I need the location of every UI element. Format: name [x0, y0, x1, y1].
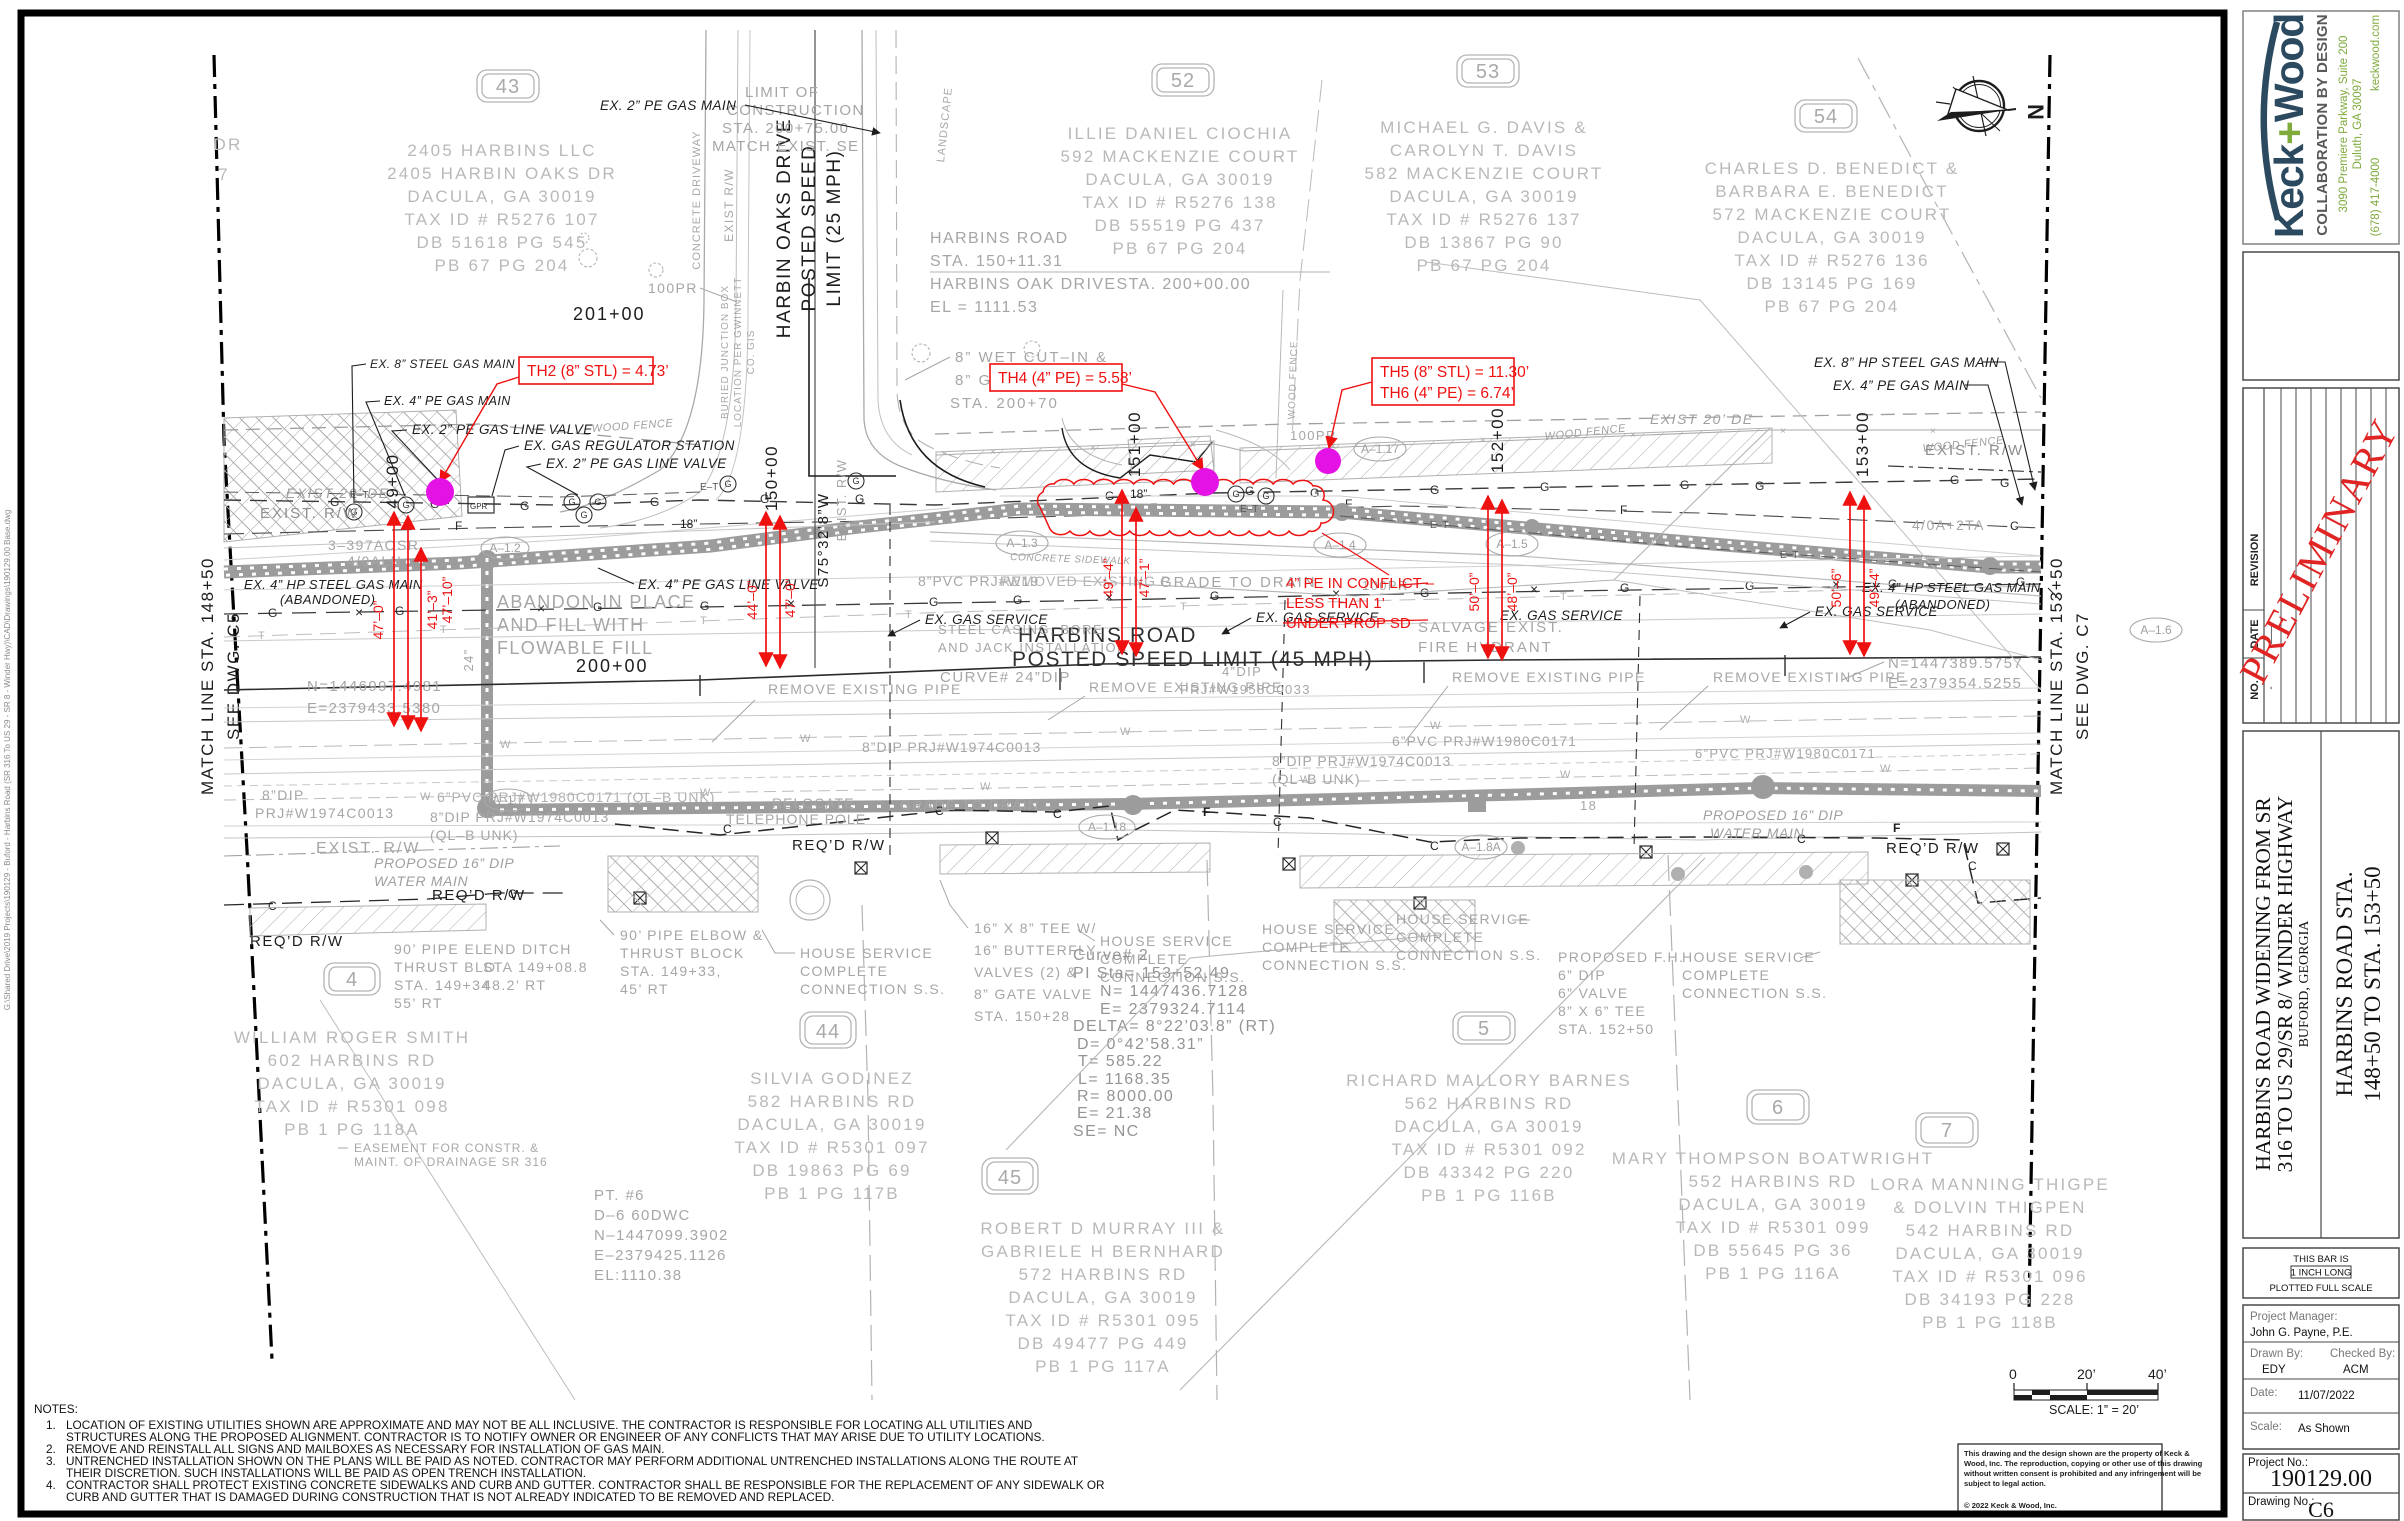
- svg-text:This drawing and the design sh: This drawing and the design shown are th…: [1964, 1449, 2190, 1458]
- svg-text:G: G: [855, 492, 864, 506]
- svg-text:Checked By:: Checked By:: [2330, 1348, 2395, 1360]
- svg-text:AND FILL WITH: AND FILL WITH: [497, 615, 645, 635]
- svg-text:EX. 2” PE GAS MAIN: EX. 2” PE GAS MAIN: [600, 98, 736, 113]
- svg-text:COLLABORATION BY DESIGN: COLLABORATION BY DESIGN: [2314, 14, 2331, 236]
- svg-text:4.: 4.: [46, 1478, 56, 1492]
- svg-text:90’ PIPE ELBOW &: 90’ PIPE ELBOW &: [620, 927, 763, 943]
- svg-text:582 MACKENZIE COURT: 582 MACKENZIE COURT: [1365, 164, 1604, 183]
- svg-text:EXIST. R/W: EXIST. R/W: [1925, 442, 2024, 459]
- svg-text:GPR: GPR: [470, 502, 488, 511]
- svg-text:PB 1 PG 118A: PB 1 PG 118A: [284, 1120, 420, 1139]
- svg-text:DB 19863 PG 69: DB 19863 PG 69: [752, 1161, 911, 1180]
- svg-text:TAX ID # R5301 095: TAX ID # R5301 095: [1005, 1311, 1200, 1330]
- svg-text:G: G: [1310, 486, 1319, 500]
- svg-text:A–1.8A: A–1.8A: [1461, 840, 1500, 854]
- svg-text:FLOWABLE FILL: FLOWABLE FILL: [497, 638, 654, 658]
- svg-text:COMPLETE: COMPLETE: [1262, 939, 1350, 955]
- svg-text:4” PE IN CONFLICT –: 4” PE IN CONFLICT –: [1286, 575, 1435, 592]
- svg-text:HOUSE SERVICE: HOUSE SERVICE: [1262, 921, 1395, 937]
- svg-text:×: ×: [990, 447, 996, 458]
- svg-text:TAX ID # R5301 099: TAX ID # R5301 099: [1675, 1218, 1870, 1237]
- svg-text:DACULA, GA 30019: DACULA, GA 30019: [1678, 1195, 1867, 1214]
- svg-text:HARBINS ROAD: HARBINS ROAD: [930, 230, 1069, 247]
- svg-text:A–1.17: A–1.17: [1361, 442, 1399, 456]
- svg-text:6: 6: [1772, 1097, 1784, 1119]
- svg-text:EX. 4” PE GAS MAIN: EX. 4” PE GAS MAIN: [1833, 378, 1969, 393]
- svg-text:STA. 149+34: STA. 149+34: [394, 977, 490, 993]
- svg-text:T: T: [258, 630, 265, 642]
- svg-text:W: W: [980, 781, 991, 793]
- svg-text:REQ’D R/W: REQ’D R/W: [432, 887, 526, 904]
- svg-text:REQ’D R/W: REQ’D R/W: [792, 837, 886, 854]
- svg-text:A–1.3: A–1.3: [1006, 536, 1038, 550]
- svg-text:G: G: [268, 606, 277, 620]
- svg-text:EX. 4” PE GAS MAIN: EX. 4” PE GAS MAIN: [384, 394, 511, 408]
- svg-text:3–397AOSR: 3–397AOSR: [328, 537, 419, 553]
- svg-text:×: ×: [1630, 430, 1636, 441]
- svg-text:DACULA, GA 30019: DACULA, GA 30019: [1008, 1288, 1197, 1307]
- svg-text:E= 2379324.7114: E= 2379324.7114: [1100, 1001, 1247, 1018]
- svg-text:EX. 8” HP STEEL GAS MAIN: EX. 8” HP STEEL GAS MAIN: [1814, 355, 1999, 370]
- svg-text:DACULA, GA 30019: DACULA, GA 30019: [737, 1115, 926, 1134]
- svg-text:G:\Shared Drive\2019 Projects\: G:\Shared Drive\2019 Projects\190129 - B…: [3, 510, 12, 1011]
- svg-text:602 HARBINS RD: 602 HARBINS RD: [268, 1051, 437, 1070]
- svg-text:×: ×: [1530, 581, 1538, 597]
- svg-text:TELEPHONE POLE: TELEPHONE POLE: [726, 811, 866, 827]
- svg-text:DACULA, GA 30019: DACULA, GA 30019: [1394, 1117, 1583, 1136]
- svg-text:GRADE TO DRAIN: GRADE TO DRAIN: [900, 797, 1040, 813]
- svg-text:TH2 (8” STL) = 4.73’: TH2 (8” STL) = 4.73’: [527, 363, 669, 380]
- svg-text:Drawn By:: Drawn By:: [2250, 1348, 2303, 1360]
- svg-text:PLOTTED FULL SCALE: PLOTTED FULL SCALE: [2269, 1283, 2372, 1294]
- svg-text:8”DIP: 8”DIP: [262, 787, 305, 803]
- svg-text:18”: 18”: [680, 517, 697, 531]
- svg-text:DB 34193 PG 228: DB 34193 PG 228: [1905, 1290, 2076, 1309]
- svg-text:RICHARD MALLORY BARNES: RICHARD MALLORY BARNES: [1346, 1071, 1632, 1090]
- svg-text:EX. GAS SERVICE: EX. GAS SERVICE: [925, 612, 1048, 627]
- svg-text:2405 HARBINS LLC: 2405 HARBINS LLC: [407, 141, 596, 160]
- svg-text:316 TO US 29/SR 8/ WINDER HIGH: 316 TO US 29/SR 8/ WINDER HIGHWAY: [2273, 796, 2297, 1173]
- svg-text:PROPOSED 16” DIP: PROPOSED 16” DIP: [1703, 807, 1843, 823]
- svg-text:(QL–B UNK): (QL–B UNK): [1272, 771, 1361, 787]
- svg-text:A–1.18: A–1.18: [1088, 820, 1126, 834]
- svg-text:8”DIP PRJ#W1974C0013: 8”DIP PRJ#W1974C0013: [862, 739, 1041, 755]
- svg-text:562 HARBINS RD: 562 HARBINS RD: [1405, 1094, 1574, 1113]
- svg-text:G: G: [1210, 589, 1219, 603]
- svg-text:STA. 152+50: STA. 152+50: [1558, 1021, 1654, 1037]
- svg-text:E= 21.38: E= 21.38: [1077, 1105, 1153, 1122]
- svg-text:G: G: [568, 497, 575, 507]
- svg-text:VALVES (2) &: VALVES (2) &: [974, 964, 1077, 980]
- svg-text:A–1.5: A–1.5: [1496, 537, 1528, 551]
- svg-text:6”PVC PRJ#W1980C0171: 6”PVC PRJ#W1980C0171: [1695, 746, 1876, 761]
- svg-text:T: T: [440, 624, 447, 636]
- svg-text:F: F: [455, 519, 462, 533]
- svg-text:DB 49477 PG 449: DB 49477 PG 449: [1018, 1334, 1189, 1353]
- svg-text:MARY THOMPSON BOATWRIGHT: MARY THOMPSON BOATWRIGHT: [1612, 1149, 1935, 1168]
- svg-text:EL:1110.38: EL:1110.38: [594, 1267, 683, 1284]
- svg-text:PB 1 PG 116B: PB 1 PG 116B: [1421, 1186, 1557, 1205]
- svg-text:E–T: E–T: [700, 482, 718, 493]
- svg-text:54: 54: [1814, 106, 1838, 128]
- svg-text:EX. GAS REGULATOR STATION: EX. GAS REGULATOR STATION: [524, 438, 735, 453]
- svg-text:C: C: [2010, 519, 2019, 533]
- svg-text:HOUSE SERVICE: HOUSE SERVICE: [1682, 949, 1815, 965]
- svg-text:E–T: E–T: [1240, 504, 1258, 515]
- svg-text:E=2379354.5255: E=2379354.5255: [1888, 675, 2022, 692]
- svg-text:100PR: 100PR: [1290, 428, 1337, 443]
- svg-text:STA. 149+33,: STA. 149+33,: [620, 963, 722, 979]
- svg-text:DB 13867 PG 90: DB 13867 PG 90: [1404, 233, 1563, 252]
- svg-text:0: 0: [2009, 1366, 2017, 1382]
- svg-text:50’–6”: 50’–6”: [1828, 568, 1844, 607]
- svg-text:MATCH LINE STA. 153+50: MATCH LINE STA. 153+50: [2047, 557, 2066, 795]
- svg-text:REMOVE EXISTING PIPE: REMOVE EXISTING PIPE: [768, 681, 962, 697]
- svg-text:582 HARBINS RD: 582 HARBINS RD: [748, 1092, 917, 1111]
- svg-text:EX. 8” STEEL GAS MAIN: EX. 8” STEEL GAS MAIN: [370, 357, 515, 371]
- svg-text:TH4 (4” PE) = 5.58’: TH4 (4” PE) = 5.58’: [998, 370, 1132, 387]
- svg-text:55’ RT: 55’ RT: [394, 995, 443, 1011]
- svg-text:SCALE: 1” = 20’: SCALE: 1” = 20’: [2049, 1403, 2139, 1417]
- svg-text:542 HARBINS RD: 542 HARBINS RD: [1906, 1221, 2075, 1240]
- svg-text:TAX ID # R5276 138: TAX ID # R5276 138: [1082, 193, 1277, 212]
- svg-text:8” GATE VALVE: 8” GATE VALVE: [974, 986, 1093, 1002]
- svg-text:G: G: [1680, 478, 1689, 492]
- svg-text:W: W: [1560, 769, 1571, 781]
- svg-text:(ABANDONED): (ABANDONED): [280, 592, 375, 607]
- svg-text:ACM: ACM: [2343, 1364, 2369, 1376]
- svg-text:572 MACKENZIE COURT: 572 MACKENZIE COURT: [1713, 205, 1952, 224]
- svg-text:PB 1 PG 116A: PB 1 PG 116A: [1705, 1264, 1841, 1283]
- svg-text:F: F: [1620, 503, 1627, 517]
- svg-text:47’–1”: 47’–1”: [1136, 558, 1152, 597]
- svg-text:C6: C6: [2308, 1497, 2334, 1521]
- svg-text:×: ×: [1480, 435, 1486, 446]
- svg-text:CONNECTION S.S.: CONNECTION S.S.: [1396, 947, 1541, 963]
- svg-text:keckwood.com: keckwood.com: [2370, 15, 2382, 91]
- svg-text:DR: DR: [214, 135, 243, 154]
- svg-text:LOCATION PER GWINNETT: LOCATION PER GWINNETT: [733, 277, 744, 428]
- svg-text:THRUST BLOCK: THRUST BLOCK: [620, 945, 745, 961]
- svg-text:44: 44: [816, 1021, 840, 1043]
- svg-text:47’–0”: 47’–0”: [370, 600, 386, 639]
- svg-text:(678) 417-4000: (678) 417-4000: [2370, 158, 2382, 237]
- svg-text:148+50 TO STA. 153+50: 148+50 TO STA. 153+50: [2360, 866, 2385, 1101]
- svg-text:NOTES:: NOTES:: [34, 1402, 78, 1416]
- svg-text:LIMIT (25 MPH): LIMIT (25 MPH): [824, 149, 845, 306]
- svg-text:TAX ID # R5276 137: TAX ID # R5276 137: [1386, 210, 1581, 229]
- svg-text:EX. 2” PE GAS LINE VALVE: EX. 2” PE GAS LINE VALVE: [412, 422, 593, 437]
- svg-text:ROBERT D MURRAY III &: ROBERT D MURRAY III &: [980, 1219, 1225, 1238]
- svg-text:DB 51618 PG 545: DB 51618 PG 545: [417, 233, 588, 252]
- svg-text:PT. #6: PT. #6: [594, 1187, 645, 1204]
- svg-text:HOUSE SERVICE: HOUSE SERVICE: [800, 945, 933, 961]
- svg-text:W: W: [1430, 720, 1441, 732]
- svg-text:ABANDON IN PLACE: ABANDON IN PLACE: [497, 592, 695, 612]
- svg-text:N= 1447436.7128: N= 1447436.7128: [1100, 983, 1249, 1000]
- svg-text:D= 0°42’58.31”: D= 0°42’58.31”: [1077, 1036, 1204, 1053]
- svg-text:AND JACK INSTALLATION: AND JACK INSTALLATION: [938, 640, 1128, 655]
- svg-text:C: C: [1053, 807, 1062, 821]
- svg-text:END DITCH: END DITCH: [483, 941, 572, 957]
- svg-text:THIS BAR IS: THIS BAR IS: [2293, 1254, 2348, 1265]
- svg-text:8”DIP PRJ#W1974C0013: 8”DIP PRJ#W1974C0013: [430, 809, 609, 825]
- svg-text:EXIST 20’ DE: EXIST 20’ DE: [1650, 411, 1754, 427]
- svg-text:PB 1 PG 117B: PB 1 PG 117B: [764, 1184, 900, 1203]
- svg-text:16” X 8” TEE W/: 16” X 8” TEE W/: [974, 920, 1097, 936]
- svg-text:40’: 40’: [2148, 1366, 2167, 1382]
- svg-text:6”PVC PRJ#W1980C0171: 6”PVC PRJ#W1980C0171: [1392, 733, 1577, 749]
- svg-text:PI Sta= 153+52.49: PI Sta= 153+52.49: [1073, 965, 1230, 982]
- svg-text:L= 1168.35: L= 1168.35: [1078, 1071, 1171, 1088]
- svg-text:45: 45: [998, 1167, 1022, 1189]
- svg-text:E–T: E–T: [1780, 550, 1798, 561]
- svg-text:REMOVE EXISTING PIPE: REMOVE EXISTING PIPE: [1089, 679, 1283, 695]
- svg-text:S75°32’8”W: S75°32’8”W: [815, 492, 832, 587]
- svg-text:As Shown: As Shown: [2298, 1423, 2350, 1435]
- svg-text:CURB AND GUTTER THAT IS DAMAGE: CURB AND GUTTER THAT IS DAMAGED DURING C…: [66, 1490, 834, 1504]
- svg-text:F: F: [1203, 805, 1210, 819]
- svg-text:G: G: [1232, 489, 1239, 499]
- svg-text:D–6 60DWC: D–6 60DWC: [594, 1207, 691, 1224]
- svg-text:100PR: 100PR: [648, 280, 698, 296]
- svg-text:SEE DWG. C5: SEE DWG. C5: [224, 612, 243, 740]
- svg-text:R= 8000.00: R= 8000.00: [1077, 1088, 1174, 1105]
- svg-text:COMPLETE: COMPLETE: [1396, 929, 1484, 945]
- svg-text:W: W: [1880, 763, 1891, 775]
- svg-text:7: 7: [218, 165, 230, 184]
- svg-text:CONNECTION S.S.: CONNECTION S.S.: [1262, 957, 1407, 973]
- svg-text:LESS THAN 1’: LESS THAN 1’: [1286, 595, 1385, 612]
- svg-text:2405 HARBIN OAKS DR: 2405 HARBIN OAKS DR: [387, 164, 617, 183]
- svg-text:G: G: [594, 497, 601, 507]
- svg-text:TAX ID # R5276 136: TAX ID # R5276 136: [1734, 251, 1929, 270]
- svg-text:REVISION: REVISION: [2249, 534, 2261, 587]
- svg-text:C: C: [1430, 839, 1439, 853]
- svg-text:POSTED SPEED: POSTED SPEED: [799, 144, 820, 311]
- svg-text:N–1447099.3902: N–1447099.3902: [594, 1227, 729, 1244]
- svg-text:CAROLYN T. DAVIS: CAROLYN T. DAVIS: [1390, 141, 1578, 160]
- svg-text:BARBARA E. BENEDICT: BARBARA E. BENEDICT: [1715, 182, 1949, 201]
- svg-text:PB 67 PG 204: PB 67 PG 204: [1416, 256, 1551, 275]
- svg-text:WATER MAIN: WATER MAIN: [1710, 825, 1804, 841]
- svg-text:24”: 24”: [461, 649, 476, 672]
- svg-text:6”PVC PRJ#W1980C0171 (QL–B UNK: 6”PVC PRJ#W1980C0171 (QL–B UNK): [437, 789, 715, 805]
- svg-text:50’–0”: 50’–0”: [1466, 572, 1482, 611]
- svg-text:×: ×: [1090, 443, 1096, 454]
- svg-text:G: G: [1620, 581, 1629, 595]
- svg-text:47’–10”: 47’–10”: [439, 576, 455, 623]
- svg-text:E–T: E–T: [1430, 520, 1448, 531]
- svg-text:REQ’D R/W: REQ’D R/W: [1886, 840, 1980, 857]
- svg-text:(QL–B UNK): (QL–B UNK): [430, 827, 519, 843]
- svg-text:THRUST BLO: THRUST BLO: [394, 959, 496, 975]
- svg-text:W: W: [1740, 714, 1751, 726]
- svg-text:44’–0”: 44’–0”: [744, 580, 760, 619]
- svg-text:3090 Premiere Parkway, Suite 2: 3090 Premiere Parkway, Suite 200: [2338, 36, 2350, 213]
- svg-text:G: G: [1013, 593, 1022, 607]
- svg-text:MAINT. OF DRAINAGE SR 316: MAINT. OF DRAINAGE SR 316: [354, 1155, 548, 1169]
- svg-text:SEE DWG. C7: SEE DWG. C7: [2073, 612, 2092, 740]
- svg-text:Date:: Date:: [2250, 1387, 2278, 1399]
- svg-text:EXIST. R/W: EXIST. R/W: [834, 459, 849, 542]
- svg-text:572 HARBINS RD: 572 HARBINS RD: [1019, 1265, 1188, 1284]
- svg-text:EX. 2” PE GAS LINE VALVE: EX. 2” PE GAS LINE VALVE: [546, 456, 727, 471]
- svg-text:201+00: 201+00: [573, 304, 646, 324]
- svg-text:CONSTRUCTION: CONSTRUCTION: [727, 102, 865, 119]
- svg-text:without written consent is pro: without written consent is prohibited an…: [1963, 1469, 2201, 1478]
- svg-text:CONCRETE DRIVEWAY: CONCRETE DRIVEWAY: [691, 130, 703, 269]
- svg-text:SILVIA GODINEZ: SILVIA GODINEZ: [750, 1069, 914, 1088]
- svg-text:TH5 (8” STL) = 11.30’: TH5 (8” STL) = 11.30’: [1380, 364, 1529, 381]
- svg-text:HARBINS ROAD WIDENING FROM SR: HARBINS ROAD WIDENING FROM SR: [2251, 797, 2275, 1171]
- svg-text:DACULA, GA 30019: DACULA, GA 30019: [407, 187, 596, 206]
- svg-text:W: W: [1120, 726, 1131, 738]
- svg-text:×: ×: [1930, 426, 1936, 437]
- svg-text:47’–0”: 47’–0”: [782, 578, 798, 617]
- svg-text:153+00: 153+00: [1853, 411, 1872, 477]
- svg-text:DACULA, GA 30019: DACULA, GA 30019: [1085, 170, 1274, 189]
- svg-text:CHARLES D. BENEDICT &: CHARLES D. BENEDICT &: [1705, 159, 1960, 178]
- svg-text:18”: 18”: [1130, 487, 1147, 501]
- svg-text:4/0A+2TA: 4/0A+2TA: [1912, 517, 1985, 533]
- svg-text:T: T: [700, 615, 707, 627]
- svg-text:BURIED JUNCTION BOX: BURIED JUNCTION BOX: [720, 285, 731, 419]
- svg-text:52: 52: [1171, 70, 1195, 92]
- svg-text:EXIST. R/W: EXIST. R/W: [260, 505, 359, 522]
- svg-text:WATER MAIN: WATER MAIN: [374, 873, 468, 889]
- svg-text:UNDER PROP SD: UNDER PROP SD: [1286, 615, 1411, 632]
- svg-text:8”DIP PRJ#W1974C0013: 8”DIP PRJ#W1974C0013: [1272, 753, 1451, 769]
- svg-text:48.2’ RT: 48.2’ RT: [483, 977, 546, 993]
- svg-text:T: T: [1180, 601, 1187, 613]
- svg-text:N=1446997.4981: N=1446997.4981: [307, 678, 442, 695]
- svg-text:F: F: [1893, 821, 1900, 835]
- svg-text:DACULA, GA 30019: DACULA, GA 30019: [1389, 187, 1578, 206]
- svg-text:DACULA, GA 30019: DACULA, GA 30019: [1737, 228, 1926, 247]
- svg-text:HOUSE SERVICE: HOUSE SERVICE: [1396, 911, 1529, 927]
- svg-text:6” VALVE: 6” VALVE: [1558, 985, 1629, 1001]
- svg-text:3.: 3.: [46, 1454, 56, 1468]
- svg-text:COMPLETE: COMPLETE: [1682, 967, 1770, 983]
- svg-text:N=1447389.5757: N=1447389.5757: [1888, 655, 2023, 672]
- svg-text:MICHAEL G. DAVIS &: MICHAEL G. DAVIS &: [1380, 118, 1588, 137]
- svg-text:G: G: [700, 599, 709, 613]
- svg-text:W: W: [800, 733, 811, 745]
- svg-text:PB 67 PG 204: PB 67 PG 204: [1764, 297, 1899, 316]
- svg-text:CONNECTION S.S.: CONNECTION S.S.: [800, 981, 945, 997]
- svg-text:CONNECTION S.S.: CONNECTION S.S.: [1682, 985, 1827, 1001]
- svg-text:Scale:: Scale:: [2250, 1421, 2282, 1433]
- svg-text:592 MACKENZIE COURT: 592 MACKENZIE COURT: [1061, 147, 1300, 166]
- svg-text:GABRIELE H BERNHARD: GABRIELE H BERNHARD: [981, 1242, 1225, 1261]
- svg-text:PB 67 PG 204: PB 67 PG 204: [434, 256, 569, 275]
- svg-text:HARBINS OAK DRIVESTA. 200+00.0: HARBINS OAK DRIVESTA. 200+00.00: [930, 276, 1251, 293]
- svg-text:EL = 1111.53: EL = 1111.53: [930, 299, 1038, 316]
- svg-text:×: ×: [1780, 426, 1786, 437]
- svg-text:T: T: [905, 609, 912, 621]
- svg-text:EXIST R/W: EXIST R/W: [722, 168, 736, 242]
- svg-text:49’–4”: 49’–4”: [1866, 568, 1882, 607]
- svg-text:150+00: 150+00: [762, 445, 781, 511]
- svg-text:EX. 4” HP STEEL GAS MAIN: EX. 4” HP STEEL GAS MAIN: [1862, 580, 2041, 595]
- svg-text:G: G: [1262, 491, 1269, 501]
- svg-text:MATCH LINE STA. 148+50: MATCH LINE STA. 148+50: [198, 557, 217, 795]
- svg-text:REMOVE EXISTING PIPE: REMOVE EXISTING PIPE: [1452, 669, 1646, 685]
- svg-text:TAX ID # R5301 092: TAX ID # R5301 092: [1391, 1140, 1586, 1159]
- svg-text:E–2379425.1126: E–2379425.1126: [594, 1247, 727, 1264]
- svg-text:G: G: [1950, 473, 1959, 487]
- svg-text:G: G: [402, 500, 409, 510]
- svg-text:DELTA= 8°22’03.8” (RT): DELTA= 8°22’03.8” (RT): [1073, 1018, 1276, 1035]
- svg-text:DACULA, GA 30019: DACULA, GA 30019: [257, 1074, 446, 1093]
- svg-text:7: 7: [1941, 1120, 1953, 1142]
- svg-text:PB 1 PG 118B: PB 1 PG 118B: [1922, 1313, 2058, 1332]
- svg-text:A–1.7: A–1.7: [492, 793, 524, 807]
- svg-text:STA 149+08.8: STA 149+08.8: [483, 959, 588, 975]
- svg-text:48’–0”: 48’–0”: [1504, 572, 1520, 611]
- svg-text:EX. 4” HP STEEL GAS MAIN: EX. 4” HP STEEL GAS MAIN: [244, 577, 423, 592]
- svg-text:W: W: [500, 739, 511, 751]
- svg-text:COMPLETE: COMPLETE: [800, 963, 888, 979]
- svg-text:CO. GIS: CO. GIS: [746, 330, 757, 375]
- svg-text:G: G: [1430, 483, 1439, 497]
- svg-text:PROPOSED F.H.: PROPOSED F.H.: [1558, 949, 1684, 965]
- svg-text:John G. Payne, P.E.: John G. Payne, P.E.: [2250, 1327, 2353, 1339]
- svg-text:G: G: [1540, 480, 1549, 494]
- svg-text:HARBINS ROAD STA.: HARBINS ROAD STA.: [2332, 872, 2357, 1097]
- svg-text:G: G: [852, 476, 859, 486]
- svg-text:552 HARBINS RD: 552 HARBINS RD: [1689, 1172, 1858, 1191]
- svg-text:A–1.6: A–1.6: [2140, 623, 2172, 637]
- svg-text:RELOCATE: RELOCATE: [772, 795, 854, 811]
- svg-text:G: G: [650, 495, 659, 509]
- svg-text:Drawing No.:: Drawing No.:: [2248, 1496, 2314, 1508]
- svg-text:MATCH EXIST. SE: MATCH EXIST. SE: [712, 138, 859, 155]
- svg-text:200+00: 200+00: [576, 656, 649, 676]
- svg-text:4: 4: [346, 969, 358, 991]
- svg-text:C: C: [1273, 815, 1282, 829]
- svg-text:WILLIAM ROGER SMITH: WILLIAM ROGER SMITH: [234, 1028, 470, 1047]
- svg-text:TAX ID # R5301 098: TAX ID # R5301 098: [254, 1097, 449, 1116]
- svg-text:Duluth, GA 30097: Duluth, GA 30097: [2352, 79, 2364, 170]
- svg-text:DB 55645 PG 36: DB 55645 PG 36: [1693, 1241, 1852, 1260]
- svg-text:PROPOSED 16” DIP: PROPOSED 16” DIP: [374, 855, 514, 871]
- svg-text:A–1.2: A–1.2: [489, 541, 521, 555]
- svg-text:45’ RT: 45’ RT: [620, 981, 669, 997]
- svg-text:53: 53: [1476, 61, 1500, 83]
- svg-text:DACULA, GA 30019: DACULA, GA 30019: [1895, 1244, 2084, 1263]
- svg-text:G: G: [929, 595, 938, 609]
- svg-text:18: 18: [1580, 798, 1597, 813]
- svg-text:T: T: [1560, 591, 1567, 603]
- svg-text:190129.00: 190129.00: [2270, 1466, 2372, 1492]
- svg-text:151+00: 151+00: [1125, 411, 1144, 477]
- svg-text:EXIST 20’ DE: EXIST 20’ DE: [286, 485, 390, 501]
- svg-text:EASEMENT FOR CONSTR. &: EASEMENT FOR CONSTR. &: [354, 1141, 539, 1155]
- svg-text:TAX ID # R5276 107: TAX ID # R5276 107: [404, 210, 599, 229]
- svg-text:PB 67 PG 204: PB 67 PG 204: [1112, 239, 1247, 258]
- svg-text:& DOLVIN THIGPEN: & DOLVIN THIGPEN: [1893, 1198, 2086, 1217]
- svg-text:90’ PIPE EL: 90’ PIPE EL: [394, 941, 484, 957]
- svg-text:LIMIT OF: LIMIT OF: [745, 84, 819, 101]
- svg-text:LORA MANNING THIGPE: LORA MANNING THIGPE: [1870, 1175, 2110, 1194]
- svg-text:TAX ID # R5301 096: TAX ID # R5301 096: [1892, 1267, 2087, 1286]
- svg-text:G: G: [1755, 479, 1764, 493]
- svg-text:1.: 1.: [46, 1418, 56, 1432]
- svg-text:SE= NC: SE= NC: [1073, 1123, 1140, 1140]
- svg-text:PRJ#W1974C0013: PRJ#W1974C0013: [255, 805, 394, 821]
